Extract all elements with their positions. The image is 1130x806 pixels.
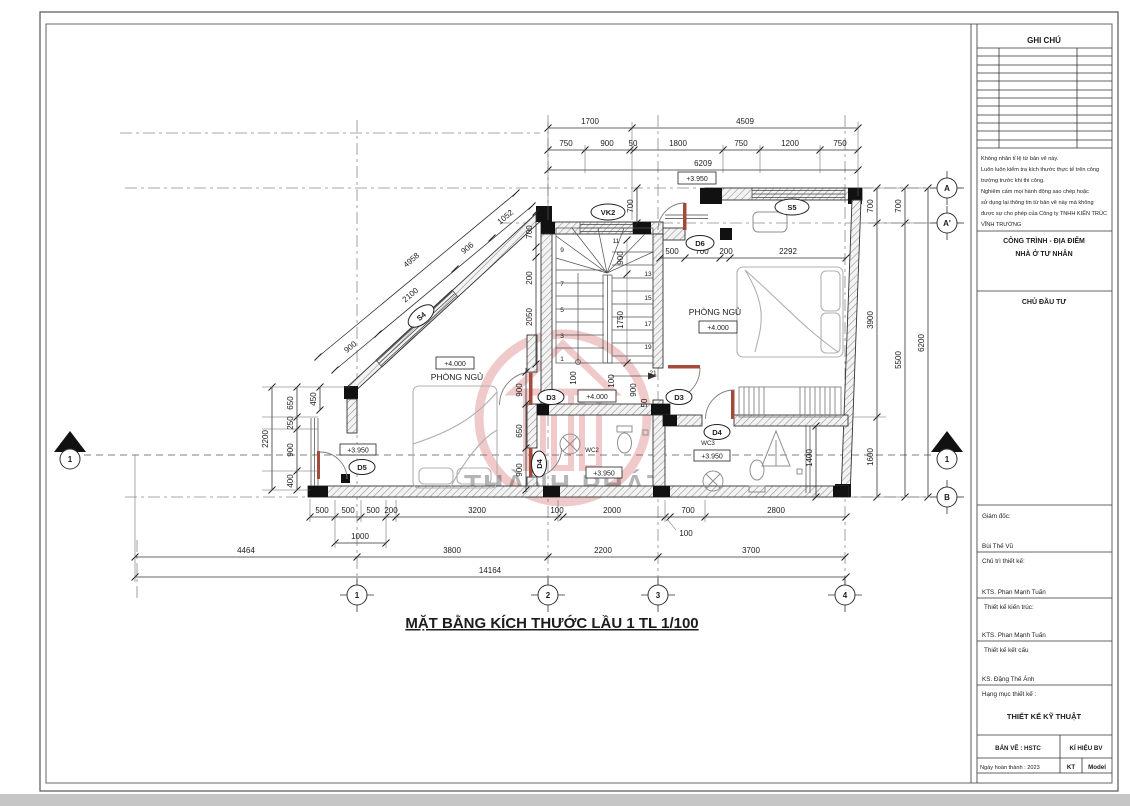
svg-text:14164: 14164 xyxy=(479,566,502,575)
svg-text:450: 450 xyxy=(309,392,318,406)
svg-text:1750: 1750 xyxy=(616,311,625,329)
door-leaf-d5 xyxy=(317,451,320,479)
door-leaf-d4-wc3 xyxy=(731,390,735,419)
svg-text:1000: 1000 xyxy=(351,532,369,541)
section-marker-right: 1 xyxy=(945,455,950,464)
svg-text:700: 700 xyxy=(626,199,635,213)
drawing-sheet: THÀNH PHÁT xyxy=(0,0,1130,806)
svg-text:13: 13 xyxy=(644,271,652,278)
svg-text:WC2: WC2 xyxy=(585,447,599,454)
notes-title: GHI CHÚ xyxy=(1027,36,1061,45)
svg-text:4958: 4958 xyxy=(402,251,422,270)
design-lead-label: Chủ trì thiết kế: xyxy=(982,556,1025,565)
architect-label: Thiết kế kiến trúc: xyxy=(984,602,1034,611)
svg-text:200: 200 xyxy=(719,247,733,256)
category-value: THIẾT KẾ KỸ THUẬT xyxy=(1007,711,1082,721)
svg-text:VĨNH TRƯỜNG: VĨNH TRƯỜNG xyxy=(981,221,1021,228)
tag-d6: D6 xyxy=(695,239,705,248)
svg-text:900: 900 xyxy=(600,139,614,148)
tag-vk2: VK2 xyxy=(601,208,616,217)
svg-text:+3.950: +3.950 xyxy=(686,176,708,183)
structural-label: Thiết kế kết cấu xyxy=(984,645,1029,654)
svg-text:+4.000: +4.000 xyxy=(586,394,608,401)
svg-text:900: 900 xyxy=(629,383,638,397)
svg-text:Không nhân tỉ lệ từ bản vẽ này: Không nhân tỉ lệ từ bản vẽ này. xyxy=(981,155,1059,162)
svg-text:+3.950: +3.950 xyxy=(701,454,723,461)
svg-text:500: 500 xyxy=(341,506,355,515)
svg-text:650: 650 xyxy=(515,424,524,438)
svg-text:100: 100 xyxy=(550,506,564,515)
svg-text:3800: 3800 xyxy=(443,546,461,555)
svg-text:trường trước khi thi công.: trường trước khi thi công. xyxy=(981,178,1045,184)
project-name: NHÀ Ở TƯ NHÂN xyxy=(1015,249,1072,258)
director-name: Bùi Thế Vũ xyxy=(982,541,1014,550)
svg-text:500: 500 xyxy=(366,506,380,515)
director-label: Giám đốc: xyxy=(982,511,1011,520)
svg-text:400: 400 xyxy=(286,474,295,488)
tag-d3: D3 xyxy=(674,393,684,402)
floor-plan-canvas: THÀNH PHÁT xyxy=(0,0,1130,806)
axis-bubble-3: 3 xyxy=(656,591,661,600)
svg-text:+4.000: +4.000 xyxy=(707,325,729,332)
svg-text:100: 100 xyxy=(679,529,693,538)
axis-bubble-B: B xyxy=(944,493,950,502)
svg-text:1200: 1200 xyxy=(781,139,799,148)
chair xyxy=(753,212,787,232)
svg-text:5: 5 xyxy=(560,307,564,314)
svg-text:650: 650 xyxy=(286,396,295,410)
category-label: Hạng mục thiết kế : xyxy=(982,689,1036,698)
axis-bubble-2: 2 xyxy=(546,591,551,600)
drawing-title: MẶT BẰNG KÍCH THƯỚC LẦU 1 TL 1/100 xyxy=(405,614,698,632)
svg-text:6209: 6209 xyxy=(694,159,712,168)
svg-text:700: 700 xyxy=(525,225,534,239)
svg-text:4509: 4509 xyxy=(736,117,754,126)
svg-text:750: 750 xyxy=(833,139,847,148)
notes-table xyxy=(977,48,1112,148)
svg-text:21: 21 xyxy=(649,370,657,377)
axis-bubble-4: 4 xyxy=(843,591,848,600)
svg-text:1: 1 xyxy=(560,356,564,363)
svg-text:7: 7 xyxy=(560,281,564,288)
svg-text:11: 11 xyxy=(613,238,620,245)
svg-text:906: 906 xyxy=(459,240,475,256)
svg-text:3900: 3900 xyxy=(866,311,875,329)
completion-date: Ngày hoàn thành : 2023 xyxy=(980,765,1040,771)
svg-text:750: 750 xyxy=(559,139,573,148)
kt-cell: KT xyxy=(1067,764,1075,771)
svg-text:PHÒNG NGỦ: PHÒNG NGỦ xyxy=(431,371,483,382)
svg-text:2200: 2200 xyxy=(594,546,612,555)
tag-d5: D5 xyxy=(357,463,367,472)
section-marker-left: 1 xyxy=(68,455,73,464)
door-leaf-d6 xyxy=(683,203,687,230)
svg-text:Luôn luôn kiểm tra kích thước: Luôn luôn kiểm tra kích thước thực tế tr… xyxy=(981,166,1099,173)
svg-text:9: 9 xyxy=(560,247,564,254)
svg-text:3: 3 xyxy=(560,333,564,340)
svg-text:6200: 6200 xyxy=(917,334,926,352)
svg-text:700: 700 xyxy=(894,199,903,213)
pillow xyxy=(419,468,453,484)
svg-text:3700: 3700 xyxy=(742,546,760,555)
svg-text:1400: 1400 xyxy=(805,449,814,467)
axis-bubble-1: 1 xyxy=(355,591,360,600)
architect-name: KTS. Phan Mạnh Tuấn xyxy=(982,630,1046,639)
tag-d3: D3 xyxy=(546,393,556,402)
door-leaf-d3-right xyxy=(668,365,700,369)
dimension-labels: 1700 4509 750 900 50 1800 750 1200 750 6… xyxy=(237,117,926,575)
floor-drain xyxy=(797,469,802,474)
svg-text:+3.950: +3.950 xyxy=(593,471,615,478)
svg-text:19: 19 xyxy=(644,344,652,351)
design-lead-name: KTS. Phan Mạnh Tuấn xyxy=(982,587,1046,596)
svg-text:900: 900 xyxy=(515,383,524,397)
svg-text:2292: 2292 xyxy=(779,247,797,256)
investor-label: CHỦ ĐẦU TƯ xyxy=(1022,296,1066,306)
svg-text:500: 500 xyxy=(315,506,329,515)
toilet xyxy=(618,433,632,453)
svg-text:17: 17 xyxy=(644,321,652,328)
svg-text:2000: 2000 xyxy=(603,506,621,515)
svg-text:50: 50 xyxy=(629,139,638,148)
svg-text:3200: 3200 xyxy=(468,506,486,515)
svg-text:900: 900 xyxy=(515,463,524,477)
project-label: CÔNG TRÌNH - ĐỊA ĐIỂM xyxy=(1003,236,1085,245)
svg-text:+4.000: +4.000 xyxy=(444,361,466,368)
svg-text:2050: 2050 xyxy=(525,308,534,326)
svg-text:250: 250 xyxy=(286,416,295,430)
structural-name: KS. Đặng Thế Ánh xyxy=(982,674,1035,683)
drawing-code: BẢN VẼ : HSTC xyxy=(995,745,1041,752)
svg-text:+3.950: +3.950 xyxy=(347,448,369,455)
svg-text:5500: 5500 xyxy=(894,351,903,369)
pillow xyxy=(821,271,840,311)
symbol-label: KÍ HIỆU BV xyxy=(1069,744,1103,752)
window-edge xyxy=(0,794,1130,806)
svg-text:100: 100 xyxy=(607,374,616,388)
svg-text:2800: 2800 xyxy=(767,506,785,515)
svg-text:200: 200 xyxy=(525,271,534,285)
title-block: GHI CHÚ Không nhân tỉ lệ từ bản vẽ này. … xyxy=(977,36,1112,773)
svg-text:sử dụng lại thông tin từ bản v: sử dụng lại thông tin từ bản vẽ này mà k… xyxy=(981,199,1094,206)
svg-text:15: 15 xyxy=(644,295,652,302)
svg-text:4464: 4464 xyxy=(237,546,255,555)
svg-text:200: 200 xyxy=(384,506,398,515)
axis-bubble-A: A xyxy=(944,184,950,193)
tag-d4: D4 xyxy=(712,428,722,437)
svg-text:700: 700 xyxy=(681,506,695,515)
svg-text:700: 700 xyxy=(866,199,875,213)
svg-text:900: 900 xyxy=(286,443,295,457)
axis-bubble-A1: A' xyxy=(943,219,951,228)
model-cell: Model xyxy=(1088,764,1106,771)
tag-d4: D4 xyxy=(535,458,544,468)
svg-text:1700: 1700 xyxy=(581,117,599,126)
svg-text:1600: 1600 xyxy=(866,448,875,466)
svg-text:900: 900 xyxy=(616,251,625,265)
toilet xyxy=(750,460,764,480)
section-markers: 1 1 xyxy=(54,431,963,469)
svg-text:1052: 1052 xyxy=(496,208,516,227)
svg-text:Nghiêm cấm mọi hành động sao c: Nghiêm cấm mọi hành động sao chép hoặc xyxy=(981,189,1089,195)
svg-text:PHÒNG NGỦ: PHÒNG NGỦ xyxy=(689,306,741,317)
svg-text:50: 50 xyxy=(640,398,649,407)
svg-text:được sự cho phép của Công ty T: được sự cho phép của Công ty TNHH KIẾN T… xyxy=(981,210,1107,217)
svg-text:1800: 1800 xyxy=(669,139,687,148)
svg-text:500: 500 xyxy=(665,247,679,256)
notes-text: Không nhân tỉ lệ từ bản vẽ này. Luôn luô… xyxy=(981,155,1107,228)
svg-text:2200: 2200 xyxy=(261,430,270,448)
grid-bubbles: 1 2 3 4 A A' B xyxy=(340,171,964,612)
svg-text:100: 100 xyxy=(569,371,578,385)
svg-text:750: 750 xyxy=(734,139,748,148)
svg-text:WC3: WC3 xyxy=(701,440,715,447)
door-leaf-d3-left xyxy=(529,372,533,405)
staircase xyxy=(556,228,657,380)
tag-s5: S5 xyxy=(787,203,796,212)
